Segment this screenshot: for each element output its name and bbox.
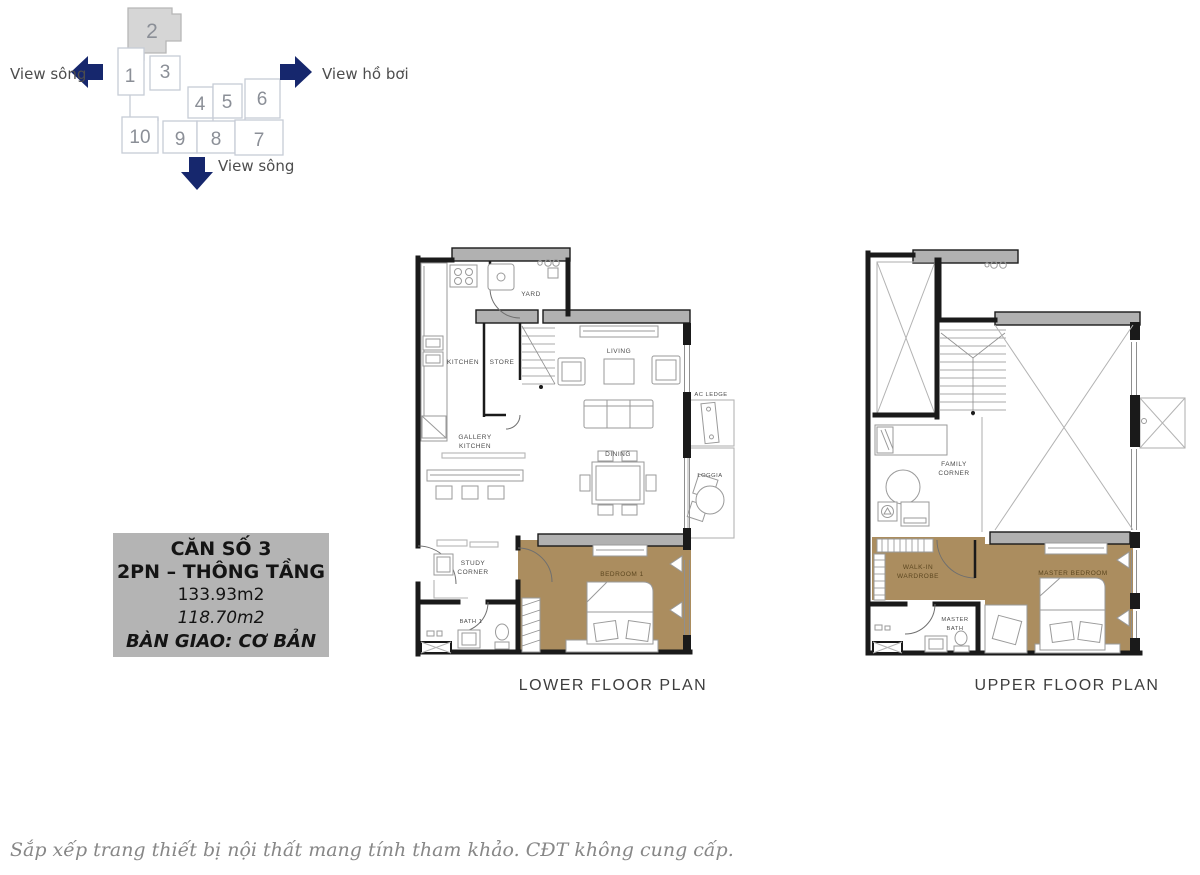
unit-label-8: 8	[211, 129, 222, 150]
yard-top-wall	[452, 248, 570, 261]
void-cross	[995, 325, 1133, 530]
unit-label-3: 3	[160, 62, 171, 83]
bedroom1-label: BEDROOM 1	[600, 571, 644, 578]
view-down-arrow-icon	[181, 157, 213, 190]
lower-plan-caption: LOWER FLOOR PLAN	[478, 677, 748, 695]
ac-ledge-label: AC LEDGE	[694, 392, 727, 398]
gallery-kitchen-label-2: KITCHEN	[459, 443, 491, 450]
upper-plan-caption: UPPER FLOOR PLAN	[932, 677, 1200, 695]
void-top-wall	[995, 312, 1140, 325]
master-bedroom-top-wall	[990, 532, 1130, 544]
family-corner-label-1: FAMILY	[941, 461, 967, 468]
gallery-kitchen-label-1: GALLERY	[458, 434, 492, 441]
stairs	[522, 326, 555, 389]
net-area-line: 118.70m2	[178, 607, 265, 630]
master-bedroom-label: MASTER BEDROOM	[1038, 570, 1107, 577]
unit-info-box: CĂN SỐ 3 2PN – THÔNG TẦNG 133.93m2 118.7…	[113, 533, 329, 657]
unit-label-5: 5	[222, 92, 233, 113]
study-corner-label-2: CORNER	[457, 569, 488, 576]
kitchen-label: KITCHEN	[447, 359, 479, 366]
building-locator-map: 2 1 3 4 5 6 7 8 9 10 View sông View hồ b…	[0, 0, 420, 200]
unit-label-6: 6	[257, 89, 268, 110]
view-song-left-label: View sông	[10, 65, 86, 83]
unit-label-10: 10	[129, 127, 150, 148]
store-label: STORE	[490, 359, 515, 366]
unit-label-7: 7	[254, 130, 265, 151]
dining-label: DINING	[605, 451, 631, 458]
family-corner-label-2: CORNER	[938, 470, 969, 477]
view-ho-boi-label: View hồ bơi	[322, 65, 409, 83]
bedroom1-top-wall	[538, 534, 690, 546]
gallery-kitchen-island	[427, 453, 525, 499]
walkin-wardrobe-label-2: WARDROBE	[897, 573, 939, 580]
handover-line: BÀN GIAO: CƠ BẢN	[126, 630, 316, 653]
unit-type-line: 2PN – THÔNG TẦNG	[117, 561, 325, 584]
living-top-wall	[543, 310, 690, 323]
view-right-arrow-icon	[280, 56, 312, 88]
master-bath-label-1: MASTER	[941, 617, 968, 623]
upper-balcony	[1140, 398, 1185, 448]
lower-floor-plan: KITCHEN STORE YARD LIVING AC LEDGE GALLE…	[410, 240, 750, 670]
walkin-wardrobe-label-1: WALK-IN	[903, 564, 933, 571]
ac-ledge-loggia	[685, 400, 734, 538]
living-furniture	[558, 326, 680, 428]
gross-area-line: 133.93m2	[178, 584, 265, 607]
unit-label-9: 9	[175, 129, 186, 150]
master-bath-label-2: BATH	[946, 626, 963, 632]
family-corner-furniture	[875, 425, 947, 526]
yard-label: YARD	[521, 291, 541, 298]
upper-floor-plan: FAMILY CORNER WALK-IN WARDROBE MASTER BA…	[855, 240, 1195, 670]
unit-number-line: CĂN SỐ 3	[171, 538, 272, 561]
unit-label-2: 2	[146, 20, 158, 43]
yard-fixtures	[488, 260, 559, 290]
upper-top-wall	[913, 250, 1018, 263]
bath1-label: BATH 1	[460, 619, 483, 625]
loggia-label: LOGGIA	[697, 473, 722, 479]
dining-furniture	[580, 451, 656, 515]
kitchen-fixtures	[421, 263, 477, 441]
store-top-wall	[476, 310, 538, 323]
bath1-fixtures	[421, 624, 509, 653]
upper-stairs	[940, 330, 1006, 416]
study-corner-label-1: STUDY	[461, 560, 486, 567]
disclaimer-note: Sắp xếp trang thiết bị nội thất mang tín…	[10, 839, 734, 861]
unit-label-1: 1	[125, 66, 136, 87]
unit-label-4: 4	[195, 94, 206, 115]
shaft	[877, 262, 935, 414]
living-label: LIVING	[607, 348, 631, 355]
floorplan-page: 2 1 3 4 5 6 7 8 9 10 View sông View hồ b…	[0, 0, 1200, 875]
view-song-bottom-label: View sông	[218, 157, 294, 175]
